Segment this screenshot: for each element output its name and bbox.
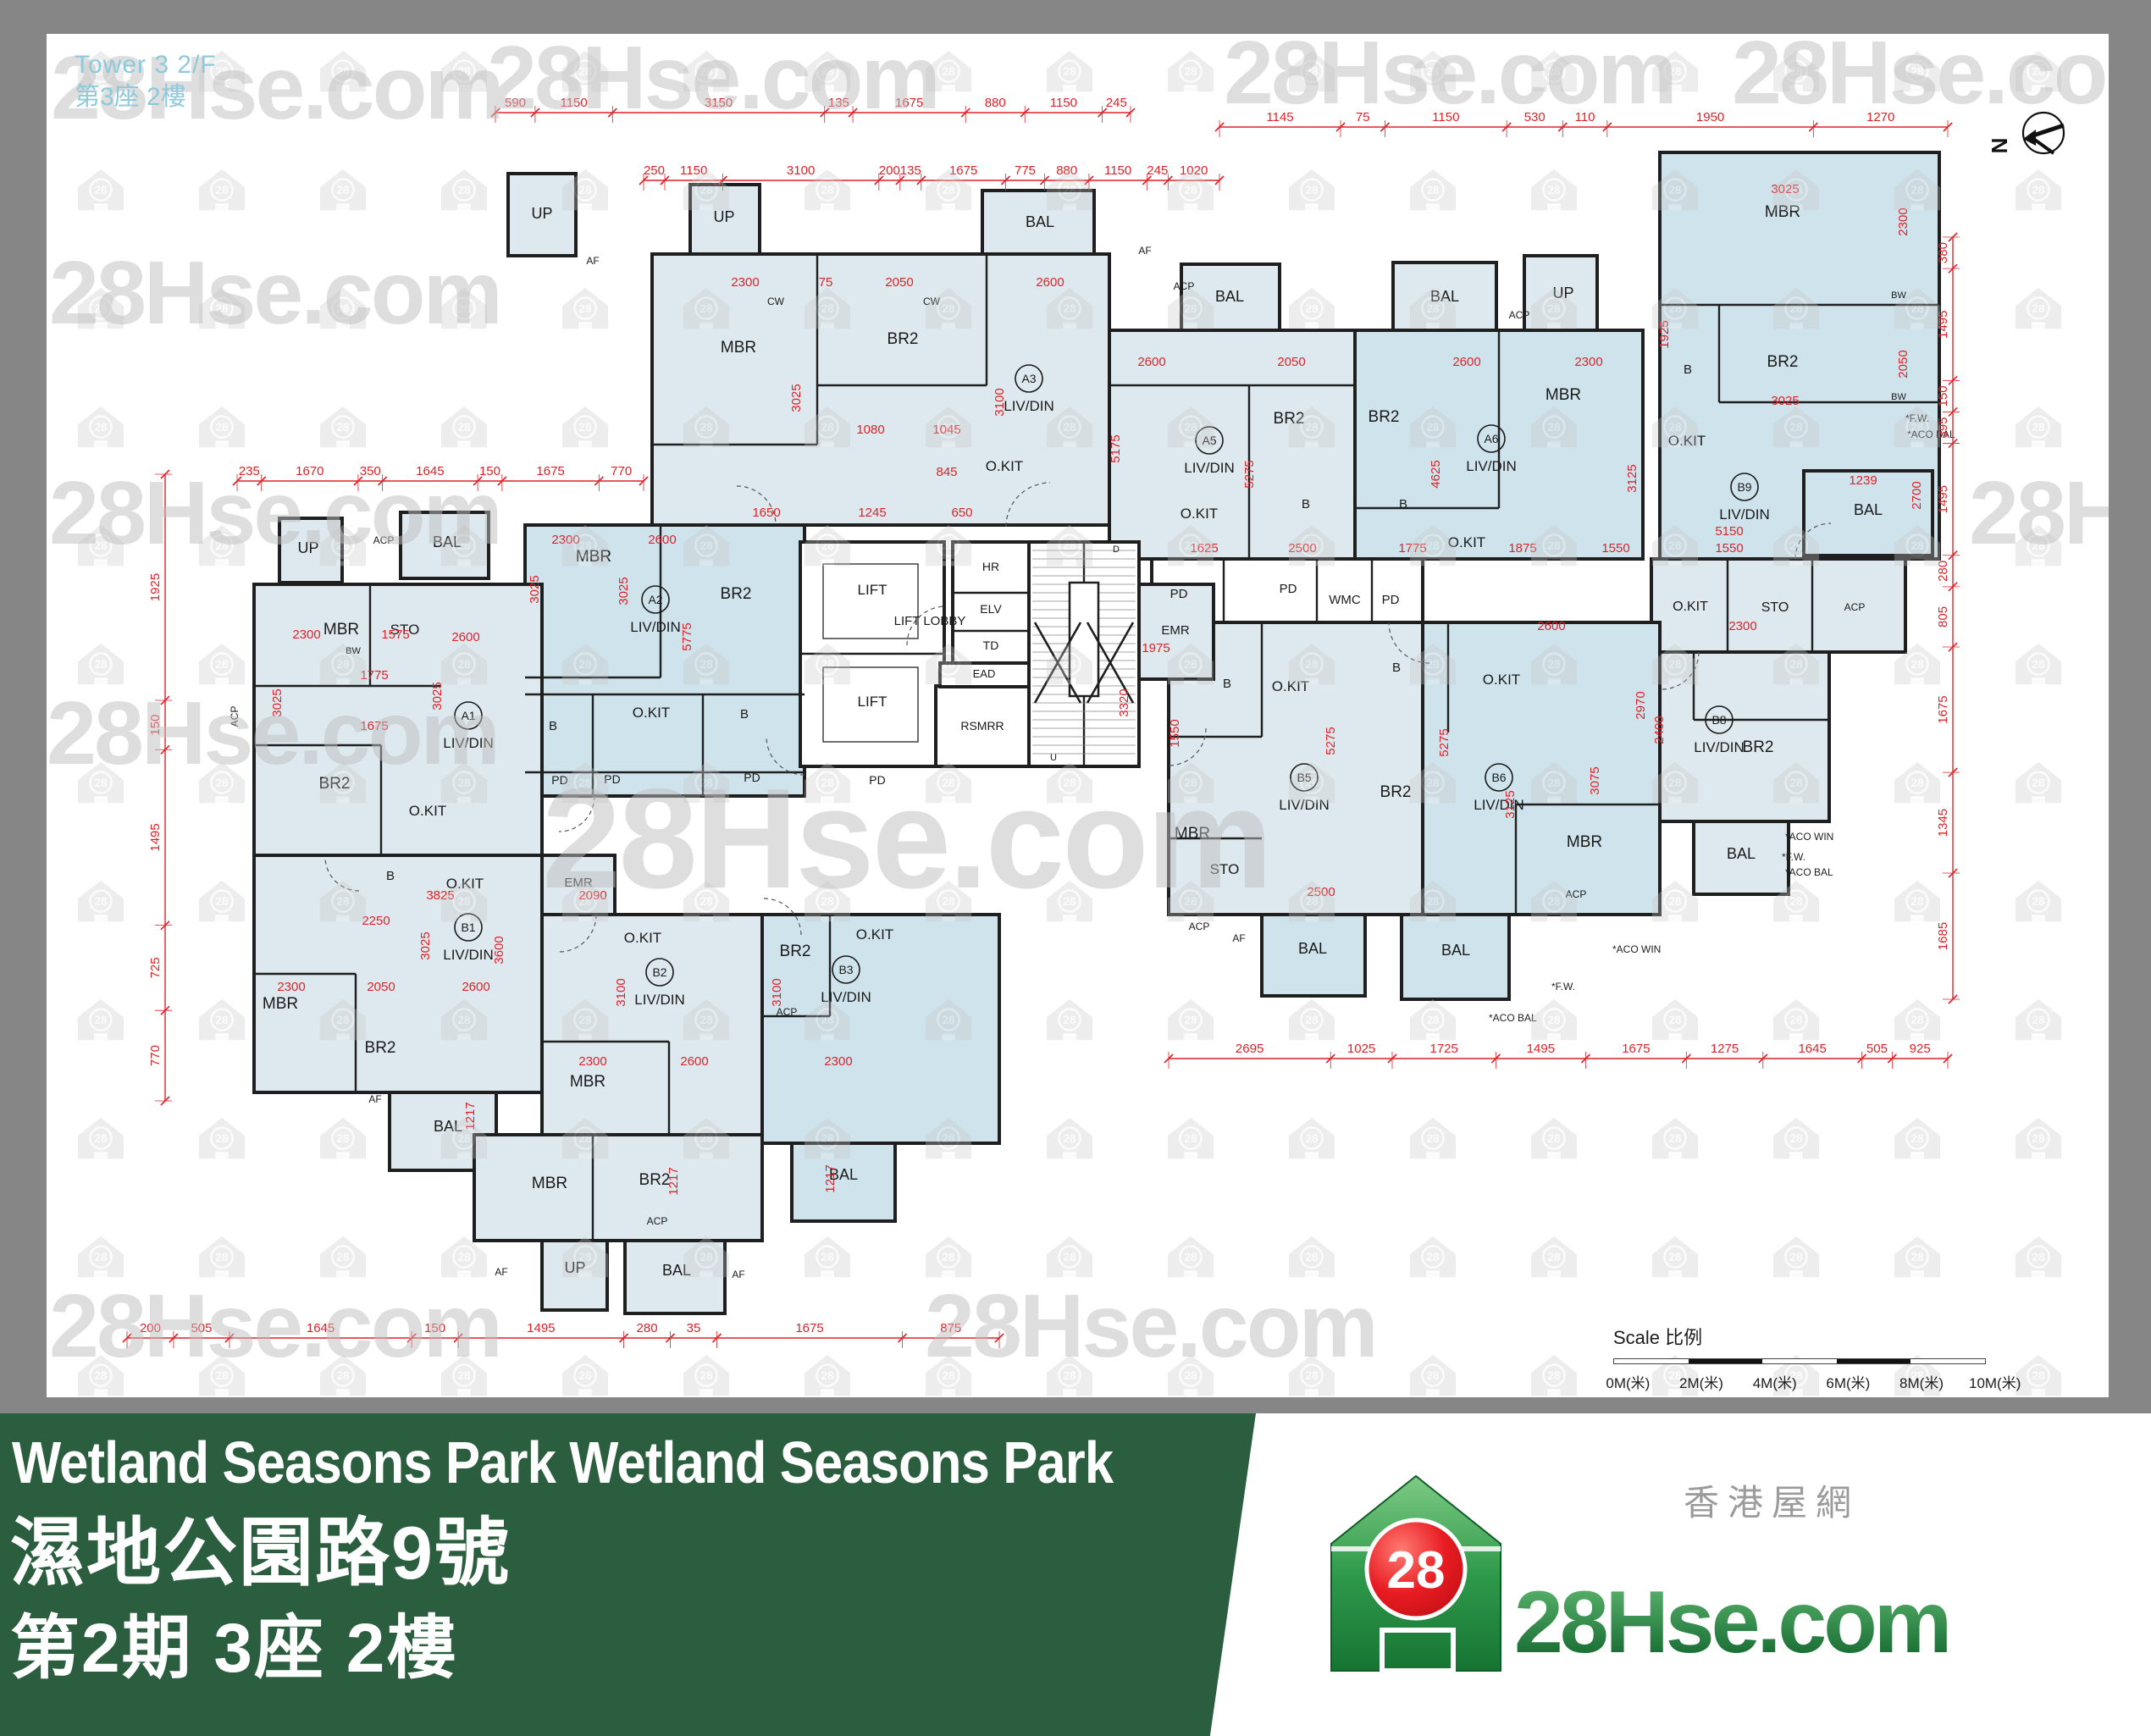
svg-text:1775: 1775	[1398, 541, 1426, 556]
site-logo[interactable]: 28 28Hse.com 香港屋網	[1321, 1464, 2083, 1718]
svg-text:875: 875	[940, 1321, 961, 1335]
scale-bar-graphic	[1613, 1358, 1986, 1364]
svg-text:STO: STO	[1761, 600, 1789, 615]
svg-text:O.KIT: O.KIT	[1448, 534, 1485, 550]
svg-text:110: 110	[1575, 110, 1595, 124]
floor-plan: UPUPBALMBRBR2O.KITCWCWAFBALACPAFBR2BO.KI…	[47, 34, 2109, 1397]
svg-text:1275: 1275	[1711, 1042, 1739, 1056]
svg-text:1675: 1675	[536, 464, 564, 478]
svg-text:3025: 3025	[430, 682, 445, 710]
svg-text:UP: UP	[713, 208, 734, 225]
svg-text:1675: 1675	[895, 96, 923, 110]
plan-title-en: Tower 3 2/F	[75, 49, 217, 81]
svg-text:ACP: ACP	[777, 1006, 798, 1018]
wall-partitions	[254, 254, 1939, 1241]
svg-text:AF: AF	[1232, 932, 1245, 944]
svg-text:1045: 1045	[932, 423, 960, 437]
svg-text:28Hse.com: 28Hse.com	[47, 683, 498, 783]
svg-text:*F.W.: *F.W.	[1905, 412, 1929, 424]
svg-text:B: B	[1399, 497, 1407, 511]
svg-text:1495: 1495	[527, 1321, 555, 1335]
svg-text:150: 150	[424, 1321, 445, 1335]
svg-text:ACP: ACP	[1844, 601, 1866, 613]
svg-text:BAL: BAL	[662, 1262, 691, 1279]
svg-text:LIV/DIN: LIV/DIN	[1279, 797, 1330, 813]
svg-text:1150: 1150	[1432, 110, 1459, 124]
svg-text:LIFT: LIFT	[858, 582, 887, 598]
svg-text:BR2: BR2	[1743, 738, 1774, 756]
svg-text:PD: PD	[869, 773, 885, 787]
svg-text:880: 880	[985, 96, 1006, 110]
svg-text:1217: 1217	[823, 1164, 838, 1192]
svg-text:28Hse.com: 28Hse.com	[1732, 34, 2109, 123]
svg-text:1150: 1150	[1104, 163, 1131, 178]
scale-bar-segment	[1614, 1359, 1689, 1363]
scale-bar-label: 0M(米)	[1591, 1371, 1665, 1392]
svg-text:LIV/DIN: LIV/DIN	[1184, 460, 1235, 476]
svg-text:1080: 1080	[856, 423, 884, 437]
svg-text:STO: STO	[390, 622, 420, 638]
svg-text:2090: 2090	[578, 888, 606, 903]
svg-text:1675: 1675	[949, 163, 977, 178]
svg-text:28Hse.com: 28Hse.com	[1224, 34, 1675, 123]
svg-text:O.KIT: O.KIT	[1673, 600, 1708, 614]
svg-text:1675: 1675	[360, 719, 388, 733]
svg-text:MBR: MBR	[532, 1175, 567, 1192]
svg-text:530: 530	[1524, 110, 1546, 124]
svg-text:BAL: BAL	[434, 1118, 462, 1135]
svg-text:BAL: BAL	[1727, 845, 1756, 862]
svg-text:O.KIT: O.KIT	[624, 930, 661, 946]
svg-text:2600: 2600	[462, 980, 489, 994]
svg-text:880: 880	[1056, 163, 1077, 178]
svg-text:RSMRR: RSMRR	[960, 719, 1004, 733]
svg-text:PD: PD	[551, 773, 567, 787]
svg-text:BR2: BR2	[1369, 408, 1400, 426]
svg-text:1675: 1675	[1936, 695, 1950, 723]
svg-text:1150: 1150	[560, 96, 587, 110]
svg-text:1217: 1217	[666, 1167, 681, 1195]
watermark-house-grid	[78, 51, 2061, 1396]
svg-text:O.KIT: O.KIT	[633, 705, 670, 721]
svg-text:BR2: BR2	[1380, 783, 1412, 801]
svg-text:925: 925	[1910, 1042, 1931, 1056]
svg-text:MBR: MBR	[323, 621, 359, 639]
svg-text:MBR: MBR	[1175, 825, 1210, 843]
property-address-zh: 濕地公園路9號	[10, 1493, 511, 1601]
svg-text:BR2: BR2	[780, 943, 811, 960]
svg-text:2050: 2050	[1277, 355, 1305, 369]
svg-text:B5: B5	[1297, 771, 1311, 784]
svg-text:D: D	[1113, 545, 1120, 555]
svg-text:590: 590	[505, 96, 526, 110]
svg-text:*F.W.: *F.W.	[1782, 851, 1805, 863]
svg-text:UP: UP	[1552, 285, 1573, 301]
svg-text:1875: 1875	[1508, 541, 1536, 556]
svg-text:BW: BW	[1891, 392, 1906, 402]
svg-text:3100: 3100	[770, 978, 784, 1006]
svg-text:35: 35	[687, 1321, 701, 1335]
svg-text:LIV/DIN: LIV/DIN	[821, 989, 871, 1005]
svg-text:LIV/DIN: LIV/DIN	[1474, 797, 1524, 813]
svg-text:2300: 2300	[292, 628, 320, 642]
floorplan-page: UPUPBALMBRBR2O.KITCWCWAFBALACPAFBR2BO.KI…	[0, 0, 2151, 1736]
scale-bar-labels: 0M(米)2M(米)4M(米)6M(米)8M(米)10M(米)	[1591, 1371, 2032, 1392]
svg-text:ACP: ACP	[229, 706, 241, 727]
svg-text:UP: UP	[564, 1259, 585, 1276]
svg-text:ACP: ACP	[373, 534, 395, 546]
svg-text:O.KIT: O.KIT	[446, 876, 484, 892]
svg-text:1020: 1020	[1180, 163, 1208, 178]
svg-text:*ACO WIN: *ACO WIN	[1612, 943, 1661, 955]
svg-text:28Hse.com: 28Hse.com	[1969, 463, 2109, 563]
svg-text:2300: 2300	[277, 980, 305, 994]
svg-text:2600: 2600	[680, 1054, 708, 1069]
svg-text:75: 75	[1356, 110, 1370, 124]
brand-text-cn: 香港屋網	[1684, 1474, 1860, 1526]
svg-text:LIFT: LIFT	[858, 694, 887, 710]
svg-text:A2: A2	[648, 593, 662, 606]
svg-text:3320: 3320	[1117, 688, 1131, 716]
svg-text:B8: B8	[1711, 713, 1726, 727]
svg-text:1495: 1495	[1936, 311, 1950, 339]
svg-text:725: 725	[148, 957, 163, 978]
svg-text:MBR: MBR	[576, 548, 611, 566]
svg-text:3025: 3025	[1771, 182, 1799, 196]
svg-text:2600: 2600	[1452, 355, 1480, 369]
svg-text:1550: 1550	[1715, 541, 1743, 556]
svg-text:1495: 1495	[148, 823, 163, 851]
svg-text:245: 245	[1147, 163, 1168, 178]
svg-text:PD: PD	[1382, 593, 1400, 607]
svg-text:5275: 5275	[1437, 728, 1452, 756]
svg-text:BAL: BAL	[829, 1166, 858, 1183]
scale-bar-title: Scale 比例	[1613, 1323, 2087, 1350]
svg-text:1245: 1245	[858, 506, 886, 520]
property-phase-tower-floor: 第2期 3座 2樓	[10, 1591, 457, 1692]
scale-bar-label: 6M(米)	[1811, 1371, 1885, 1392]
svg-text:CW: CW	[767, 296, 785, 307]
svg-text:5150: 5150	[1715, 524, 1743, 539]
svg-text:3600: 3600	[492, 936, 506, 964]
svg-text:28Hse.com: 28Hse.com	[49, 463, 500, 563]
watermark-layer: 2828Hse.com28Hse.com28Hse.com28Hse.com28…	[47, 34, 2109, 1397]
svg-text:ACP: ACP	[1174, 280, 1195, 292]
svg-text:200: 200	[140, 1321, 161, 1335]
svg-text:2600: 2600	[1137, 355, 1165, 369]
svg-text:1495: 1495	[1936, 485, 1950, 513]
unit-blocks	[254, 152, 1939, 1313]
svg-text:B2: B2	[652, 965, 666, 979]
scale-bar: Scale 比例 0M(米)2M(米)4M(米)6M(米)8M(米)10M(米)	[1613, 1323, 2087, 1392]
svg-text:AF: AF	[1138, 245, 1151, 257]
svg-text:1550: 1550	[1601, 541, 1629, 556]
svg-text:1345: 1345	[1936, 809, 1950, 837]
svg-text:*ACO BAL: *ACO BAL	[1785, 866, 1833, 878]
svg-text:A3: A3	[1021, 372, 1036, 385]
svg-text:1217: 1217	[463, 1102, 478, 1130]
plan-title-zh: 第3座 2樓	[75, 81, 217, 113]
annotation-notes: *ACO WIN*F.W.*ACO BAL*ACO WIN*F.W.*ACO B…	[1489, 412, 1955, 1024]
door-arcs	[325, 483, 1831, 952]
svg-text:1685: 1685	[1936, 922, 1950, 950]
svg-text:1550: 1550	[1168, 719, 1182, 747]
scale-bar-label: 8M(米)	[1885, 1371, 1959, 1392]
svg-text:775: 775	[1015, 163, 1036, 178]
svg-text:770: 770	[611, 464, 632, 478]
svg-text:PD: PD	[1280, 582, 1297, 596]
svg-text:2300: 2300	[731, 275, 759, 290]
scale-bar-label: 4M(米)	[1738, 1371, 1811, 1392]
svg-text:BAL: BAL	[1215, 288, 1244, 305]
logo-house-icon: 28	[1331, 1476, 1501, 1671]
svg-text:ACP: ACP	[647, 1215, 668, 1227]
svg-text:650: 650	[951, 506, 972, 520]
svg-text:135: 135	[828, 96, 849, 110]
svg-text:2600: 2600	[451, 630, 479, 644]
svg-text:O.KIT: O.KIT	[1668, 433, 1706, 449]
svg-text:1675: 1675	[795, 1321, 823, 1335]
svg-text:MBR: MBR	[1546, 386, 1581, 404]
svg-text:2300: 2300	[578, 1054, 606, 1069]
svg-text:WMC: WMC	[1329, 593, 1361, 607]
svg-text:LIV/DIN: LIV/DIN	[634, 992, 685, 1008]
svg-text:1645: 1645	[307, 1321, 335, 1335]
svg-text:BAL: BAL	[433, 534, 462, 550]
svg-text:2695: 2695	[1236, 1042, 1264, 1056]
svg-text:250: 250	[644, 163, 665, 178]
scattered-dimensions: 2300752050260030253100517510801045845165…	[270, 182, 1924, 1196]
svg-text:150: 150	[479, 464, 500, 478]
svg-text:2300: 2300	[824, 1054, 852, 1069]
svg-text:TD: TD	[983, 639, 999, 652]
svg-text:STO: STO	[1210, 861, 1240, 877]
svg-text:3025: 3025	[418, 932, 433, 959]
svg-text:2600: 2600	[1537, 619, 1565, 633]
svg-text:1775: 1775	[360, 668, 388, 683]
svg-text:B3: B3	[838, 963, 853, 976]
svg-text:2700: 2700	[1910, 481, 1924, 509]
svg-text:CW: CW	[923, 296, 941, 307]
svg-text:BAL: BAL	[1441, 942, 1470, 959]
svg-text:2050: 2050	[367, 980, 395, 994]
svg-text:1495: 1495	[1527, 1042, 1555, 1056]
svg-text:1270: 1270	[1866, 110, 1894, 124]
svg-text:28Hse.com: 28Hse.com	[49, 243, 500, 343]
svg-text:LIV/DIN: LIV/DIN	[443, 735, 494, 751]
svg-text:1725: 1725	[1429, 1042, 1457, 1056]
svg-text:1025: 1025	[1347, 1042, 1375, 1056]
svg-text:845: 845	[936, 465, 957, 479]
svg-text:BW: BW	[346, 646, 361, 656]
svg-text:2300: 2300	[1728, 619, 1756, 633]
svg-text:AF: AF	[732, 1269, 744, 1280]
svg-text:A5: A5	[1202, 434, 1216, 447]
svg-text:N: N	[1987, 138, 2012, 154]
svg-text:2600: 2600	[648, 533, 676, 547]
brand-text: 28Hse.com	[1514, 1573, 1949, 1672]
svg-text:505: 505	[191, 1321, 212, 1335]
svg-text:28Hse.com: 28Hse.com	[49, 1276, 500, 1376]
svg-text:200: 200	[879, 163, 900, 178]
svg-text:380: 380	[1936, 242, 1950, 263]
svg-text:3025: 3025	[1771, 394, 1799, 408]
scale-bar-label: 2M(米)	[1665, 1371, 1739, 1392]
svg-text:28Hse.com: 28Hse.com	[542, 759, 1270, 918]
svg-text:1645: 1645	[416, 464, 444, 478]
svg-text:1925: 1925	[1657, 320, 1672, 348]
svg-text:245: 245	[1106, 96, 1127, 110]
footer-banner: Wetland Seasons Park Wetland Seasons Par…	[0, 1413, 2151, 1736]
property-name-en: Wetland Seasons Park Wetland Seasons Par…	[12, 1429, 1113, 1496]
svg-text:1675: 1675	[1622, 1042, 1650, 1056]
svg-text:BR2: BR2	[365, 1039, 396, 1057]
svg-text:2300: 2300	[1896, 207, 1910, 235]
svg-text:1950: 1950	[1696, 110, 1724, 124]
svg-text:3025: 3025	[789, 384, 804, 412]
svg-text:3100: 3100	[787, 163, 815, 178]
svg-text:1650: 1650	[752, 506, 780, 520]
svg-text:B: B	[549, 719, 557, 733]
svg-text:BAL: BAL	[1854, 501, 1883, 518]
svg-text:2300: 2300	[1574, 355, 1602, 369]
svg-text:LIV/DIN: LIV/DIN	[1694, 739, 1745, 755]
scale-bar-segment	[1910, 1359, 1985, 1363]
scale-bar-segment	[1837, 1359, 1911, 1363]
svg-text:150: 150	[1936, 385, 1950, 406]
svg-text:BR2: BR2	[319, 775, 351, 793]
svg-text:B: B	[1302, 497, 1310, 511]
svg-text:3100: 3100	[993, 388, 1007, 416]
svg-text:BAL: BAL	[1026, 213, 1054, 230]
svg-text:*ACO BAL: *ACO BAL	[1907, 428, 1955, 440]
svg-text:1239: 1239	[1849, 473, 1877, 488]
svg-text:EAD: EAD	[973, 667, 996, 680]
svg-text:3075: 3075	[1588, 766, 1602, 794]
svg-text:AF: AF	[495, 1266, 507, 1278]
svg-text:280: 280	[1936, 561, 1950, 582]
svg-text:PD: PD	[604, 772, 620, 786]
svg-text:3150: 3150	[705, 96, 733, 110]
svg-text:LIV/DIN: LIV/DIN	[630, 619, 681, 635]
svg-text:B6: B6	[1491, 771, 1506, 784]
scale-bar-segment	[1762, 1359, 1837, 1363]
svg-text:505: 505	[1866, 1042, 1888, 1056]
svg-text:UP: UP	[297, 539, 318, 556]
svg-text:2300: 2300	[551, 533, 579, 547]
scale-bar-label: 10M(米)	[1958, 1371, 2032, 1392]
svg-text:2050: 2050	[885, 275, 913, 290]
svg-text:235: 235	[239, 464, 260, 478]
floorplan-paper: UPUPBALMBRBR2O.KITCWCWAFBALACPAFBR2BO.KI…	[47, 34, 2109, 1397]
svg-text:5175: 5175	[1109, 434, 1123, 462]
svg-text:BAL: BAL	[1430, 288, 1459, 305]
svg-text:2500: 2500	[1288, 541, 1316, 556]
svg-text:LIV/DIN: LIV/DIN	[1466, 458, 1517, 474]
svg-text:1925: 1925	[148, 573, 163, 601]
dimension-chains: 2501150310020013516757758801150245102011…	[123, 96, 1960, 1348]
svg-text:150: 150	[148, 715, 163, 736]
svg-text:770: 770	[148, 1045, 163, 1066]
svg-text:LIV/DIN: LIV/DIN	[1719, 506, 1770, 522]
svg-text:LIFT LOBBY: LIFT LOBBY	[894, 614, 966, 628]
svg-text:MBR: MBR	[721, 339, 756, 357]
scale-bar-segment	[1689, 1359, 1763, 1363]
svg-text:LIV/DIN: LIV/DIN	[443, 947, 494, 963]
svg-text:B: B	[386, 869, 395, 883]
svg-text:BR2: BR2	[1767, 353, 1799, 371]
svg-text:ELV: ELV	[980, 602, 1002, 616]
svg-text:3025: 3025	[528, 575, 542, 603]
svg-text:B: B	[740, 707, 749, 721]
svg-text:*F.W.: *F.W.	[1551, 981, 1575, 992]
svg-text:3825: 3825	[426, 888, 454, 903]
svg-text:BR2: BR2	[1274, 410, 1305, 428]
svg-text:A1: A1	[461, 709, 475, 722]
svg-text:4625: 4625	[1429, 460, 1443, 488]
svg-text:LIV/DIN: LIV/DIN	[1004, 398, 1054, 414]
svg-text:3025: 3025	[270, 688, 285, 716]
svg-text:5275: 5275	[1242, 460, 1257, 488]
svg-text:1145: 1145	[1266, 110, 1293, 124]
svg-text:28Hse.com: 28Hse.com	[487, 34, 938, 128]
stair-hatch	[1032, 550, 1136, 754]
svg-text:B: B	[1392, 661, 1401, 675]
svg-text:3125: 3125	[1625, 464, 1640, 492]
svg-text:B: B	[1223, 677, 1231, 691]
svg-text:O.KIT: O.KIT	[856, 926, 893, 943]
plan-title: Tower 3 2/F 第3座 2樓	[75, 49, 217, 113]
svg-text:O.KIT: O.KIT	[1181, 506, 1218, 522]
svg-text:1575: 1575	[381, 628, 409, 642]
svg-text:B1: B1	[461, 921, 475, 934]
svg-text:3125: 3125	[1503, 790, 1518, 818]
svg-text:B: B	[1684, 362, 1692, 377]
unit-markers: A1LIV/DINA2LIV/DINA3LIV/DINA5LIV/DINA6LI…	[443, 365, 1770, 1008]
svg-text:28: 28	[1387, 1541, 1446, 1600]
svg-text:MBR: MBR	[1765, 203, 1800, 221]
svg-text:*ACO WIN: *ACO WIN	[1785, 831, 1833, 843]
room-labels: UPUPBALMBRBR2O.KITCWCWAFBALACPAFBR2BO.KI…	[229, 203, 1906, 1280]
svg-text:5775: 5775	[680, 622, 694, 650]
svg-text:B9: B9	[1737, 480, 1751, 494]
svg-text:EMR: EMR	[564, 876, 593, 890]
north-arrow: N	[1987, 113, 2064, 153]
svg-text:UP: UP	[531, 205, 552, 222]
svg-text:1975: 1975	[1142, 641, 1170, 655]
svg-text:O.KIT: O.KIT	[1272, 678, 1309, 694]
svg-text:BR2: BR2	[639, 1171, 671, 1189]
svg-text:PD: PD	[1170, 587, 1188, 601]
svg-text:3100: 3100	[614, 978, 628, 1006]
svg-text:28Hse.com: 28Hse.com	[925, 1276, 1376, 1376]
svg-text:1670: 1670	[296, 464, 323, 478]
svg-text:395: 395	[1936, 417, 1950, 438]
svg-text:1150: 1150	[680, 163, 707, 178]
svg-text:3025: 3025	[617, 577, 631, 605]
svg-text:BAL: BAL	[1298, 940, 1327, 957]
svg-text:1625: 1625	[1190, 541, 1218, 556]
svg-text:ACP: ACP	[1509, 309, 1530, 321]
svg-text:75: 75	[819, 275, 833, 290]
svg-text:EMR: EMR	[1161, 623, 1190, 638]
svg-text:BW: BW	[1891, 290, 1906, 301]
svg-text:MBR: MBR	[570, 1073, 605, 1091]
svg-text:PD: PD	[744, 771, 760, 784]
svg-text:805: 805	[1936, 606, 1950, 628]
svg-text:AF: AF	[368, 1093, 381, 1105]
svg-text:U: U	[1050, 753, 1057, 763]
